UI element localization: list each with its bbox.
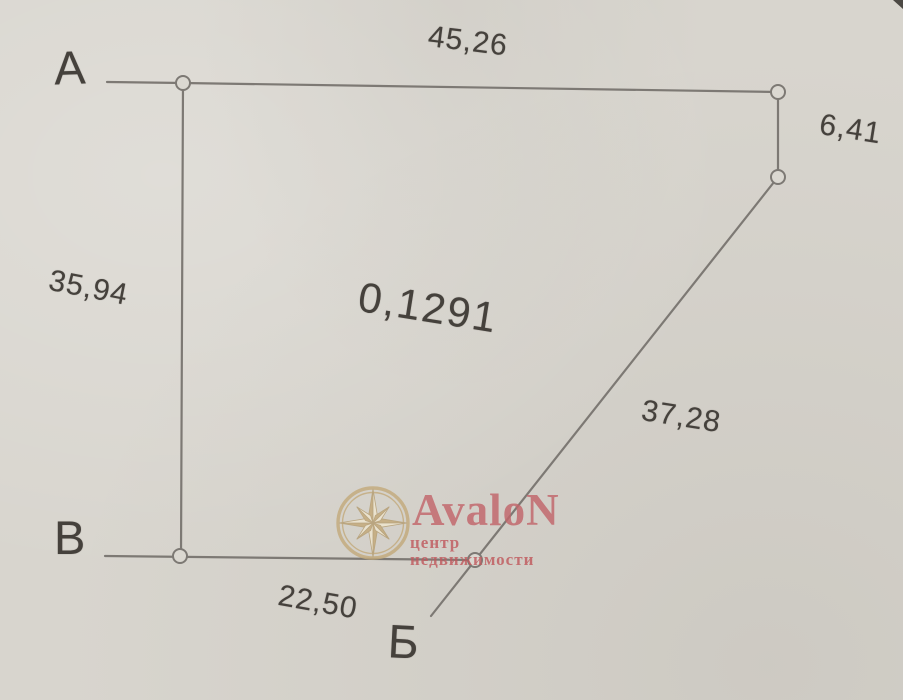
vertex-point [771, 85, 785, 99]
boundary-top [183, 83, 778, 92]
leader-line-a [107, 82, 183, 83]
vertex-label-a: А [53, 43, 86, 91]
compass-rose-icon [332, 482, 414, 564]
vertex-label-v: В [54, 514, 85, 561]
vertex-point [771, 170, 785, 184]
watermark: AvaloN центр недвижимости [332, 484, 582, 564]
vertex-point [176, 76, 190, 90]
vertex-point [173, 549, 187, 563]
plot-boundary-drawing [0, 0, 903, 700]
survey-plan-scan: А В Б 45,26 6,41 35,94 37,28 22,50 0,129… [0, 0, 903, 700]
watermark-tagline-text: центр недвижимости [410, 534, 582, 568]
watermark-brand-text: AvaloN [412, 488, 560, 533]
boundary-left [181, 83, 183, 556]
scan-corner-smudge [893, 0, 903, 9]
vertex-label-b: Б [387, 617, 420, 666]
